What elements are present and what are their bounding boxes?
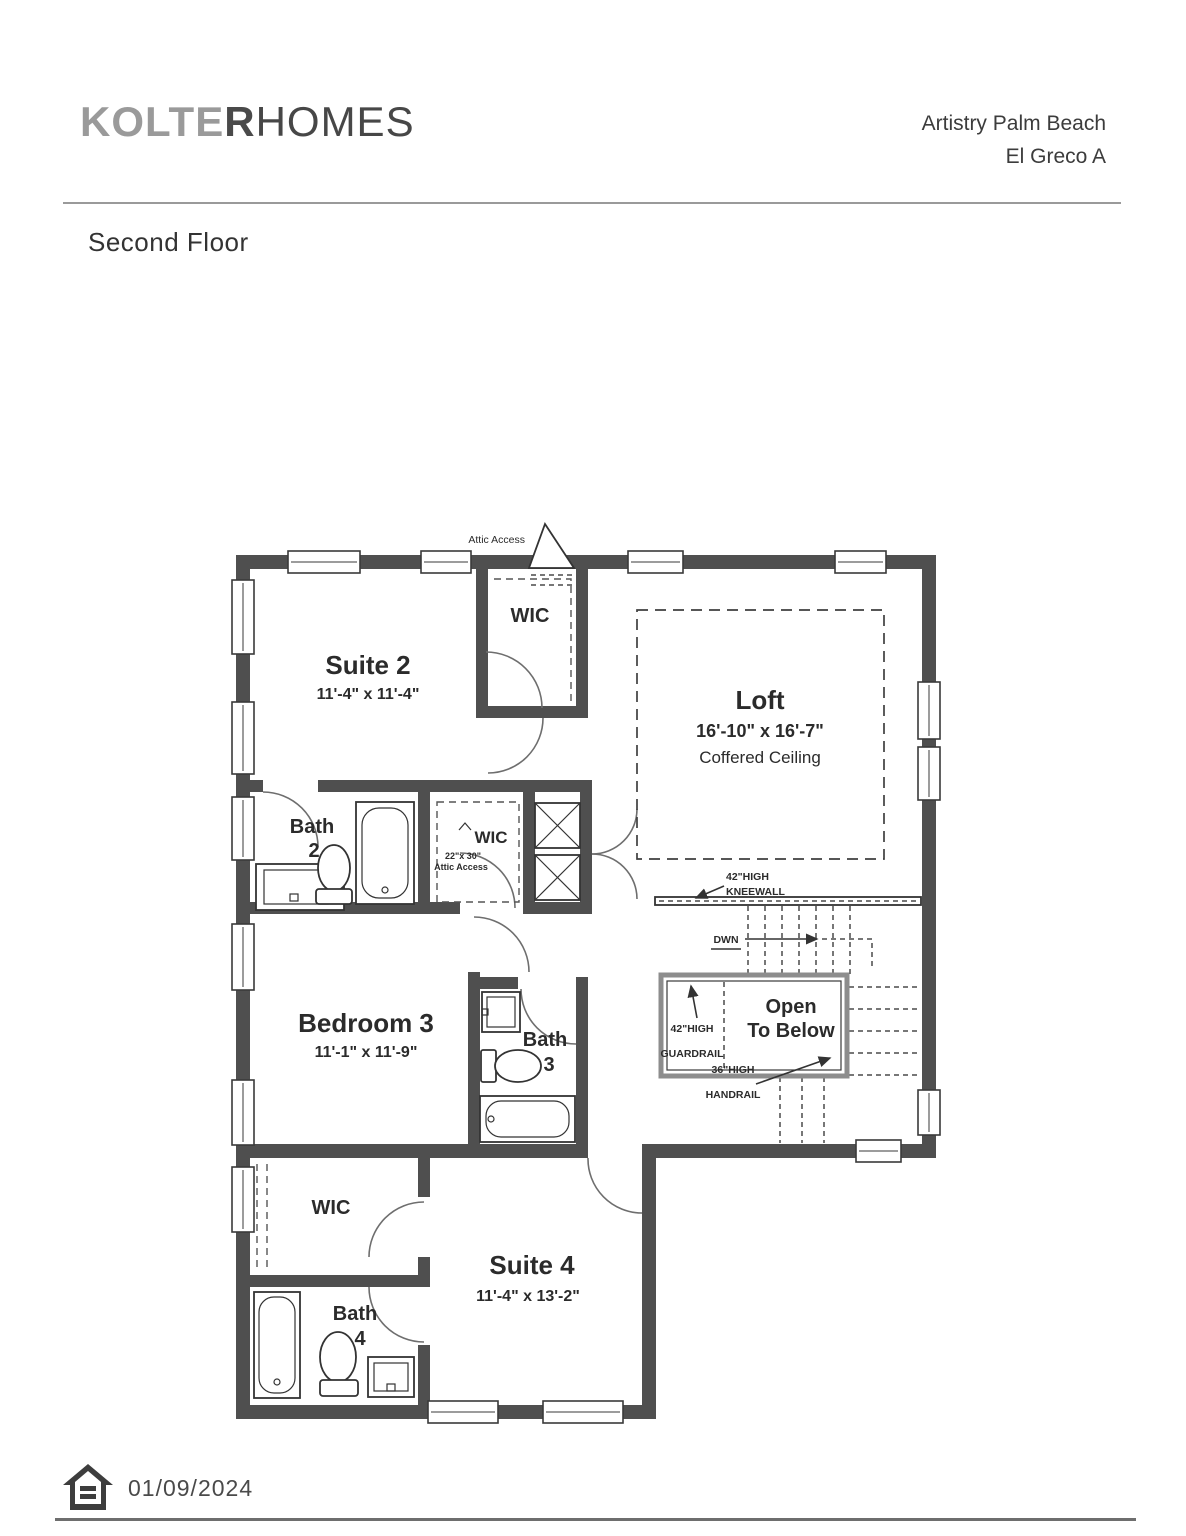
wic-mid-attic-size: 22"x 30" bbox=[445, 851, 481, 861]
attic-caret-icon bbox=[459, 823, 471, 830]
toilet bbox=[316, 845, 352, 904]
wic-top-label: WIC bbox=[511, 605, 550, 627]
bathtub bbox=[254, 1292, 300, 1398]
handrail-label-2: HANDRAIL bbox=[706, 1089, 761, 1101]
window bbox=[918, 747, 940, 800]
closet-shelving bbox=[257, 579, 571, 1270]
bath4-label: Bath bbox=[333, 1303, 377, 1325]
loft-dims: 16'-10" x 16'-7" bbox=[696, 721, 824, 741]
loft-ceiling-note: Coffered Ceiling bbox=[699, 748, 821, 767]
page-bottom-edge bbox=[55, 1518, 1136, 1521]
window bbox=[835, 551, 886, 573]
header-divider-line bbox=[63, 202, 1121, 204]
door-arc-bath4 bbox=[369, 1287, 424, 1342]
window bbox=[428, 1401, 498, 1423]
door-arc-bedroom3 bbox=[474, 917, 529, 972]
floorplan-document-page: KOLTERHOMES Artistry Palm Beach El Greco… bbox=[0, 0, 1186, 1536]
window bbox=[421, 551, 471, 573]
stairs-down-label: DWN bbox=[713, 934, 738, 946]
suite2-dims: 11'-4" x 11'-4" bbox=[317, 686, 420, 703]
door-arc-suite2 bbox=[488, 718, 543, 773]
kneewall bbox=[655, 897, 921, 905]
suite2-label: Suite 2 bbox=[325, 650, 410, 680]
guardrail-label-2: GUARDRAIL bbox=[661, 1048, 725, 1060]
kolter-homes-logo: KOLTERHOMES bbox=[80, 101, 415, 143]
guardrail-label-1: 42"HIGH bbox=[671, 1023, 714, 1035]
attic-access-label: Attic Access bbox=[468, 534, 525, 546]
bath2-fixtures bbox=[256, 802, 414, 910]
bath2-number: 2 bbox=[308, 840, 319, 862]
plan-date: 01/09/2024 bbox=[128, 1475, 253, 1502]
window bbox=[232, 1167, 254, 1232]
door-arc-wic-top bbox=[486, 652, 542, 708]
equal-housing-logo-icon bbox=[60, 1460, 116, 1516]
window bbox=[232, 1080, 254, 1145]
logo-kolter-text: KOLTE bbox=[80, 98, 224, 145]
suite4-dims: 11'-4" x 13'-2" bbox=[476, 1288, 580, 1305]
bedroom3-label: Bedroom 3 bbox=[298, 1008, 434, 1038]
logo-homes-text: HOMES bbox=[256, 98, 415, 145]
wic-mid-attic-label: Attic Access bbox=[434, 862, 488, 872]
toilet bbox=[481, 1050, 541, 1082]
bathtub bbox=[356, 802, 414, 904]
page-title: Second Floor bbox=[88, 227, 249, 258]
wic-bottom-label: WIC bbox=[312, 1197, 351, 1219]
window bbox=[232, 924, 254, 990]
suite4-label: Suite 4 bbox=[489, 1250, 575, 1280]
loft-label: Loft bbox=[735, 685, 784, 715]
floor-plan-drawing: Attic Access bbox=[228, 512, 948, 1452]
door-arc-loft-double-upper bbox=[592, 809, 637, 854]
window bbox=[288, 551, 360, 573]
window bbox=[628, 551, 683, 573]
window bbox=[232, 797, 254, 860]
toilet bbox=[320, 1332, 358, 1396]
handrail-label-1: 36"HIGH bbox=[712, 1064, 755, 1076]
logo-r-text: R bbox=[224, 98, 255, 145]
bath2-label: Bath bbox=[290, 816, 334, 838]
window bbox=[232, 580, 254, 654]
community-name: Artistry Palm Beach bbox=[922, 107, 1106, 140]
kneewall-label-1: 42"HIGH bbox=[726, 871, 769, 883]
attic-access-hatch bbox=[529, 524, 574, 585]
window bbox=[232, 702, 254, 774]
bath3-number: 3 bbox=[543, 1054, 554, 1076]
open-below-label-1: Open bbox=[765, 996, 816, 1018]
bath4-number: 4 bbox=[354, 1328, 366, 1350]
bedroom3-dims: 11'-1" x 11'-9" bbox=[315, 1044, 418, 1061]
bath3-label: Bath bbox=[523, 1029, 567, 1051]
sink-vanity bbox=[482, 992, 520, 1032]
window bbox=[918, 1090, 940, 1135]
door-arc-loft-double-lower bbox=[592, 854, 637, 899]
sink-vanity bbox=[368, 1357, 414, 1397]
plan-identification: Artistry Palm Beach El Greco A bbox=[922, 107, 1106, 173]
wic-mid-label: WIC bbox=[474, 828, 507, 847]
window bbox=[856, 1140, 901, 1162]
open-below-label-2: To Below bbox=[747, 1020, 835, 1042]
mechanical-closet bbox=[535, 803, 580, 900]
bathtub bbox=[480, 1096, 575, 1142]
window bbox=[918, 682, 940, 739]
model-name: El Greco A bbox=[922, 140, 1106, 173]
door-arc-wic-bottom bbox=[369, 1202, 424, 1257]
kneewall-label-2: KNEEWALL bbox=[726, 886, 786, 898]
window bbox=[543, 1401, 623, 1423]
door-arc-suite4 bbox=[588, 1158, 642, 1213]
